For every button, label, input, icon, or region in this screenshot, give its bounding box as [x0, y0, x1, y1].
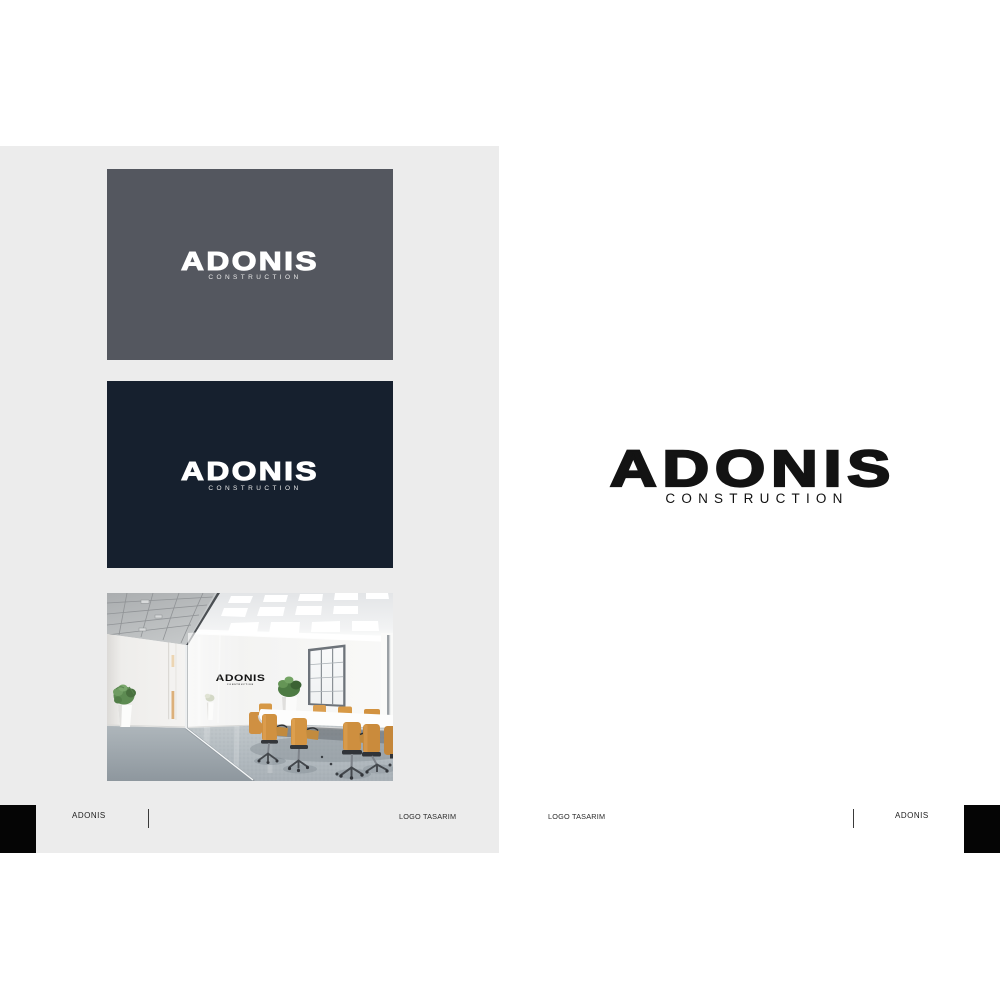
- svg-text:ADONIS: ADONIS: [216, 673, 266, 684]
- svg-text:CONSTRUCTION: CONSTRUCTION: [227, 684, 254, 686]
